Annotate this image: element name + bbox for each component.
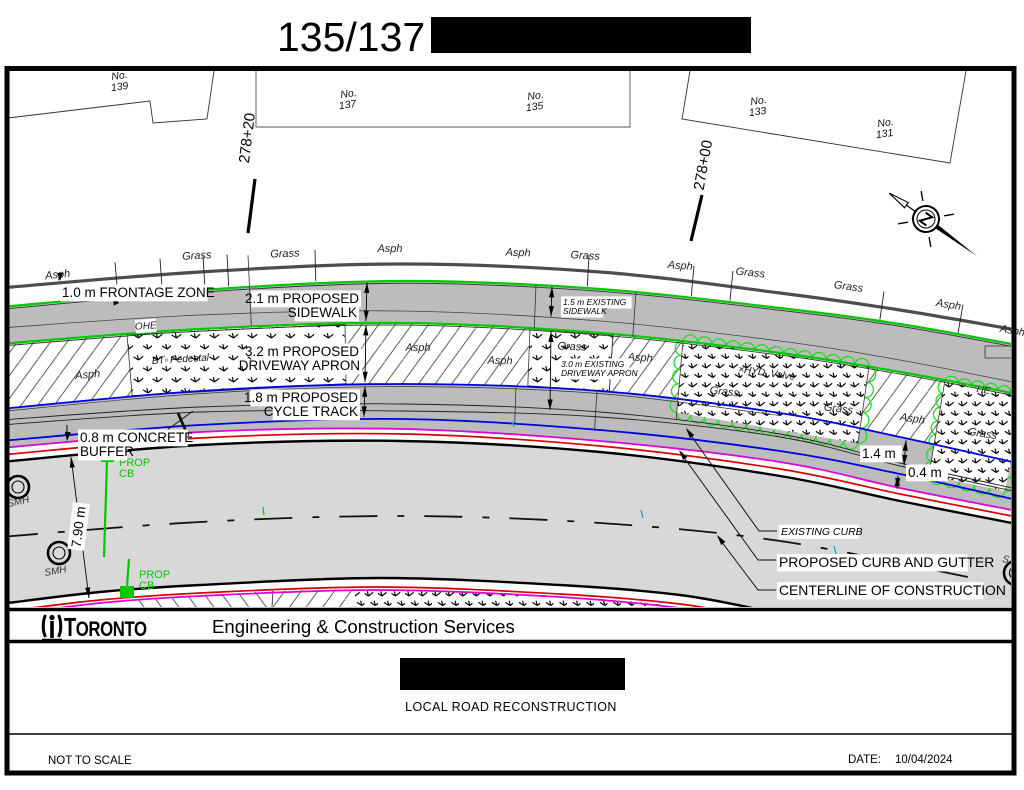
svg-text:131: 131: [875, 127, 894, 141]
svg-text:Grass: Grass: [270, 247, 300, 260]
svg-text:CB: CB: [119, 468, 134, 480]
svg-text:139: 139: [110, 80, 129, 94]
svg-text:PROPOSED CURB AND GUTTER: PROPOSED CURB AND GUTTER: [779, 554, 994, 570]
svg-text:Grass: Grass: [182, 249, 213, 263]
svg-text:Asph: Asph: [666, 259, 693, 273]
svg-text:1.0 m FRONTAGE ZONE: 1.0 m FRONTAGE ZONE: [62, 285, 215, 300]
svg-text:0.8 m CONCRETE: 0.8 m CONCRETE: [80, 430, 193, 445]
svg-text:135/137: 135/137: [277, 14, 425, 60]
svg-text:135: 135: [525, 100, 544, 114]
svg-text:Asph: Asph: [486, 355, 512, 368]
svg-text:Asph: Asph: [504, 247, 530, 260]
svg-text:CENTERLINE OF CONSTRUCTION: CENTERLINE OF CONSTRUCTION: [779, 582, 1006, 598]
svg-text:OHE: OHE: [135, 320, 158, 333]
svg-text:Asph: Asph: [404, 342, 430, 354]
svg-text:133: 133: [748, 105, 767, 119]
svg-text:DRIVEWAY APRON: DRIVEWAY APRON: [561, 368, 639, 378]
svg-text:NOT TO SCALE: NOT TO SCALE: [48, 755, 132, 767]
svg-text:Grass: Grass: [557, 340, 587, 353]
svg-text:Asph: Asph: [376, 243, 402, 255]
svg-text:EXISTING CURB: EXISTING CURB: [781, 526, 863, 538]
svg-text:0.4 m: 0.4 m: [908, 465, 942, 480]
svg-text:1.4 m: 1.4 m: [862, 446, 896, 461]
svg-text:SIDEWALK: SIDEWALK: [288, 305, 357, 320]
svg-text:HE: HE: [976, 384, 992, 397]
svg-text:3.2 m PROPOSED: 3.2 m PROPOSED: [245, 344, 359, 359]
svg-text:BUFFER: BUFFER: [80, 444, 134, 459]
svg-text:Asph: Asph: [74, 368, 101, 382]
svg-text:SIDEWALK: SIDEWALK: [563, 306, 607, 316]
svg-text:CYCLE TRACK: CYCLE TRACK: [264, 404, 358, 419]
svg-text:Engineering & Construction Ser: Engineering & Construction Services: [212, 616, 515, 637]
svg-text:10/04/2024: 10/04/2024: [895, 754, 953, 766]
svg-text:DATE:: DATE:: [848, 754, 881, 766]
svg-text:DRIVEWAY APRON: DRIVEWAY APRON: [239, 358, 360, 373]
svg-text:Grass: Grass: [570, 249, 600, 263]
svg-text:CB: CB: [139, 580, 154, 592]
svg-text:1.8 m PROPOSED: 1.8 m PROPOSED: [244, 390, 358, 405]
svg-text:Asph: Asph: [626, 351, 653, 365]
svg-text:2.1 m PROPOSED: 2.1 m PROPOSED: [245, 291, 359, 306]
svg-text:LOCAL ROAD RECONSTRUCTION: LOCAL ROAD RECONSTRUCTION: [405, 700, 617, 714]
